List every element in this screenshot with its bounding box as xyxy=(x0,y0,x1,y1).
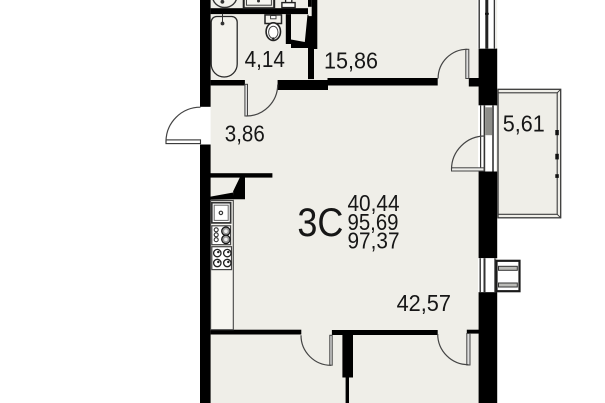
svg-text:42,57: 42,57 xyxy=(397,290,451,316)
svg-text:4,14: 4,14 xyxy=(245,46,285,72)
svg-text:15,86: 15,86 xyxy=(324,48,378,74)
svg-text:97,37: 97,37 xyxy=(348,227,400,253)
svg-text:3С: 3С xyxy=(297,201,343,245)
svg-text:3,86: 3,86 xyxy=(225,121,265,147)
svg-text:5,61: 5,61 xyxy=(503,111,545,137)
